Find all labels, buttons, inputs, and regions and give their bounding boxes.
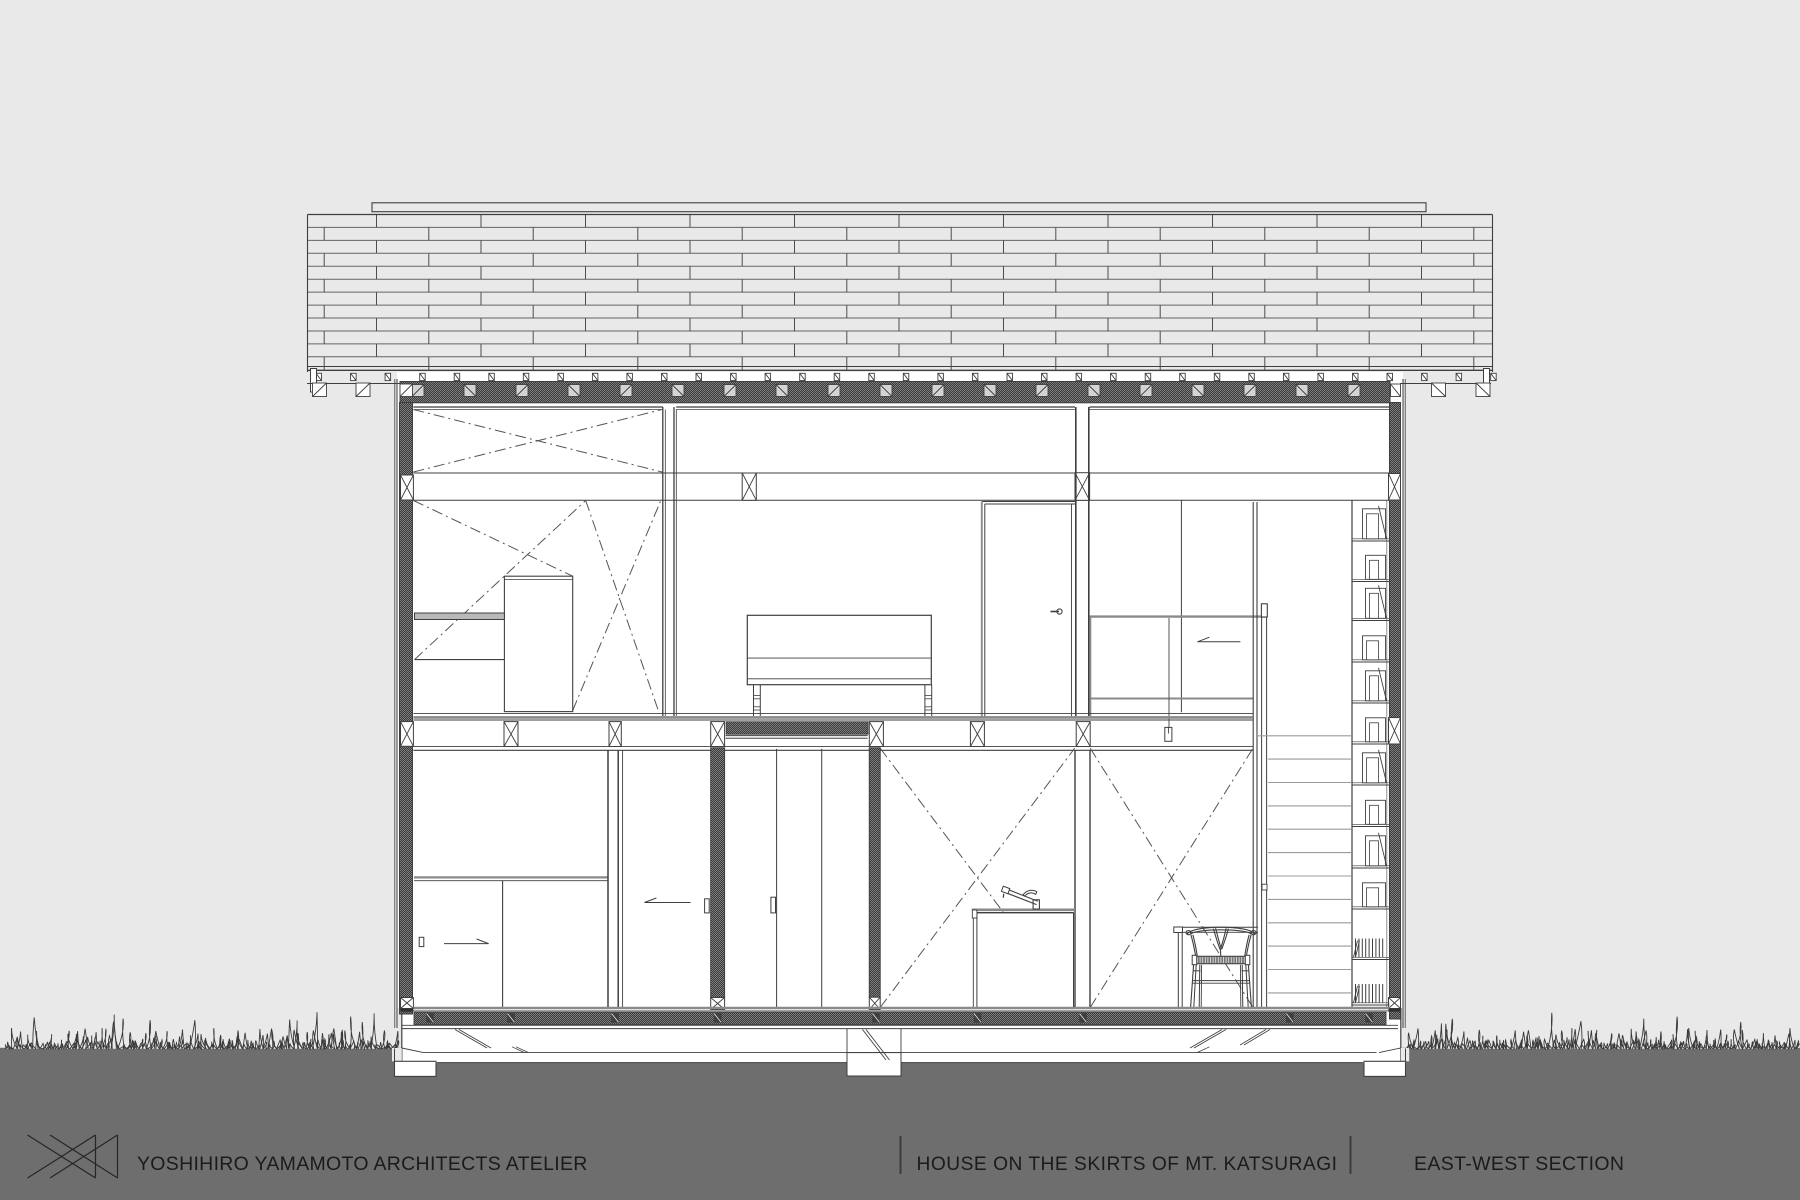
svg-text:YOSHIHIRO YAMAMOTO ARCHITECTS: YOSHIHIRO YAMAMOTO ARCHITECTS ATELIER bbox=[137, 1153, 588, 1175]
svg-text:HOUSE ON THE SKIRTS OF MT. KAT: HOUSE ON THE SKIRTS OF MT. KATSURAGI bbox=[917, 1154, 1338, 1175]
svg-text:EAST-WEST SECTION: EAST-WEST SECTION bbox=[1414, 1153, 1624, 1175]
